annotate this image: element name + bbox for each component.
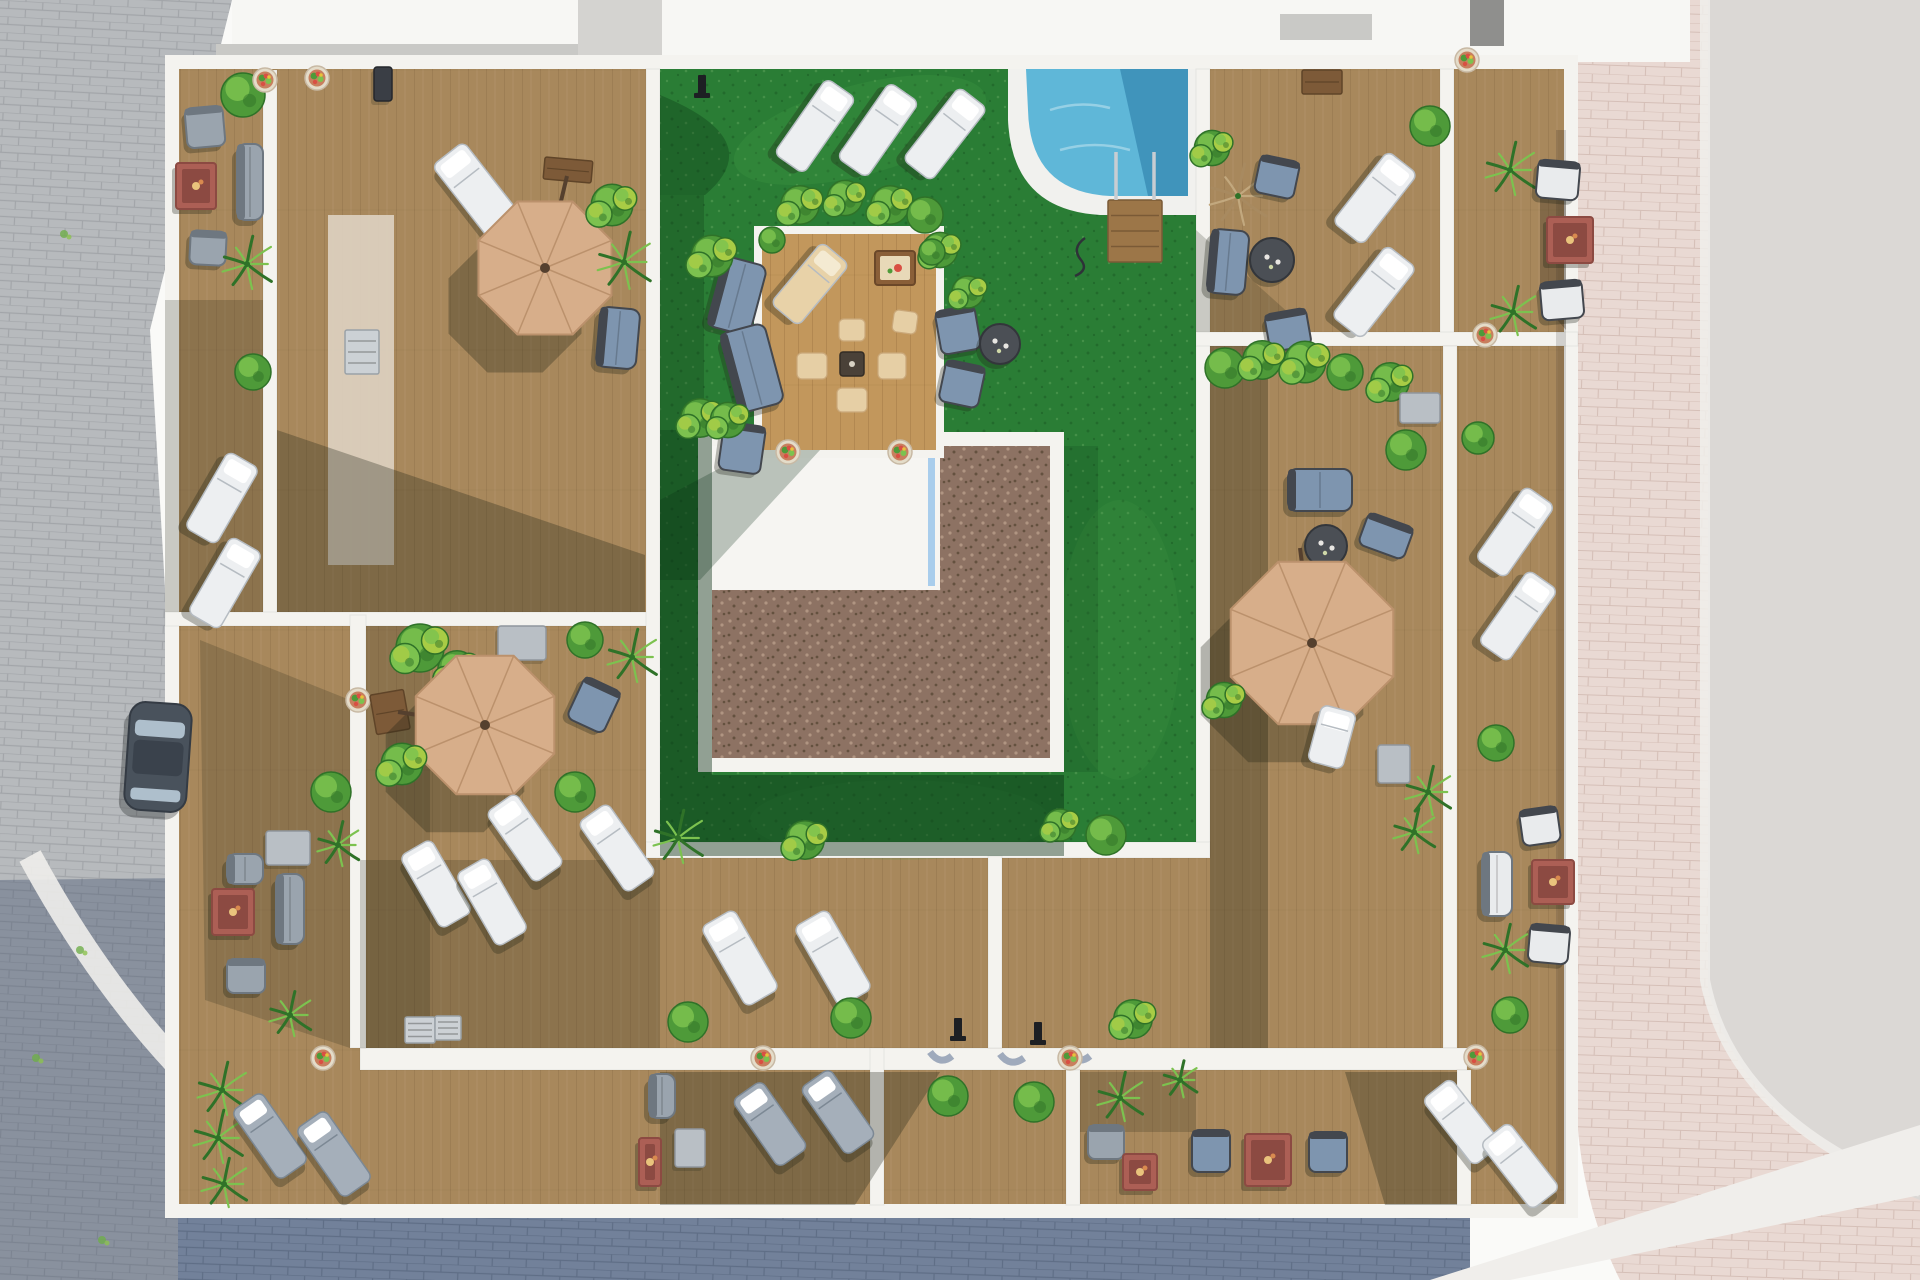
bush bbox=[1478, 725, 1514, 761]
bush bbox=[235, 354, 271, 390]
table-red bbox=[172, 163, 216, 214]
wall-v7 bbox=[1066, 1070, 1080, 1205]
wall-v4 bbox=[1440, 69, 1454, 335]
chair-blue bbox=[931, 305, 983, 361]
bush bbox=[1492, 997, 1528, 1033]
table-red bbox=[1543, 217, 1593, 268]
sofa-white bbox=[1477, 852, 1512, 922]
chair-blue bbox=[1188, 1130, 1230, 1177]
bush bbox=[567, 622, 603, 658]
street-bottom-paving bbox=[178, 1218, 1470, 1280]
central-block-glass-rail bbox=[928, 450, 935, 586]
cushion bbox=[878, 353, 906, 379]
bush bbox=[311, 772, 351, 812]
table-red bbox=[208, 889, 254, 940]
bush bbox=[1386, 430, 1426, 470]
chair-gray bbox=[1084, 1125, 1124, 1164]
bush bbox=[1086, 815, 1126, 855]
bush bbox=[1462, 422, 1494, 454]
wall-v9 bbox=[988, 856, 1002, 1048]
box-gray bbox=[263, 831, 310, 869]
bush bbox=[1014, 1082, 1054, 1122]
bush bbox=[919, 239, 945, 265]
cushion bbox=[892, 309, 919, 334]
ac bbox=[435, 1016, 461, 1040]
chair-gray bbox=[223, 959, 265, 998]
box-gray bbox=[672, 1129, 705, 1171]
box-gray bbox=[1397, 393, 1440, 427]
cushion bbox=[839, 319, 865, 341]
table-red bbox=[1528, 860, 1574, 909]
table-red bbox=[1241, 1134, 1291, 1191]
pot bbox=[253, 68, 277, 92]
table-red bbox=[635, 1138, 661, 1191]
pot bbox=[305, 66, 329, 90]
pot bbox=[776, 440, 800, 464]
bench bbox=[1302, 70, 1342, 94]
table-brown bbox=[875, 251, 915, 285]
chair-white bbox=[1515, 806, 1562, 852]
sofa-gray bbox=[232, 144, 263, 226]
pot bbox=[1473, 323, 1497, 347]
box-dark bbox=[371, 67, 392, 105]
wall-v3 bbox=[1196, 69, 1210, 856]
chair-gray bbox=[180, 105, 226, 153]
ac bbox=[345, 330, 379, 374]
cushion bbox=[837, 388, 867, 412]
wall-v5 bbox=[1443, 346, 1457, 1048]
top-balcony-rail bbox=[1280, 14, 1372, 40]
wall-h5 bbox=[360, 1048, 1467, 1070]
table-dark bbox=[840, 352, 864, 376]
box-gray bbox=[1375, 745, 1410, 787]
pot bbox=[346, 688, 370, 712]
bush bbox=[907, 197, 943, 233]
bush bbox=[1327, 354, 1363, 390]
pot bbox=[311, 1046, 335, 1070]
bush bbox=[928, 1076, 968, 1116]
chair-white bbox=[1523, 923, 1571, 970]
bush bbox=[668, 1002, 708, 1042]
scene-canvas bbox=[0, 0, 1920, 1280]
car bbox=[118, 701, 193, 821]
chair-blue bbox=[1305, 1132, 1347, 1177]
top-dark-block bbox=[1470, 0, 1504, 46]
sofa-blue bbox=[1283, 469, 1352, 517]
bush bbox=[759, 227, 785, 253]
bush bbox=[831, 998, 871, 1038]
top-stair-block bbox=[578, 0, 662, 64]
sofa-blue bbox=[1201, 228, 1250, 301]
pot bbox=[1455, 48, 1479, 72]
wall-v2 bbox=[646, 69, 660, 856]
pot bbox=[1058, 1046, 1082, 1070]
pot bbox=[1464, 1045, 1488, 1069]
chair-white bbox=[1535, 279, 1585, 326]
pot bbox=[751, 1046, 775, 1070]
chair-white bbox=[1531, 159, 1581, 206]
sofa-gray bbox=[222, 854, 263, 890]
sofa-gray bbox=[271, 874, 304, 950]
sofa-blue bbox=[590, 306, 641, 376]
table-red bbox=[1119, 1154, 1157, 1195]
pot bbox=[888, 440, 912, 464]
rooftop-plan-render bbox=[0, 0, 1920, 1280]
bush bbox=[1410, 106, 1450, 146]
chair-gray bbox=[185, 230, 227, 271]
sofa-gray bbox=[644, 1074, 675, 1124]
ac bbox=[405, 1017, 435, 1043]
wall-v1 bbox=[263, 70, 277, 625]
cushion bbox=[797, 353, 827, 379]
bush bbox=[555, 772, 595, 812]
